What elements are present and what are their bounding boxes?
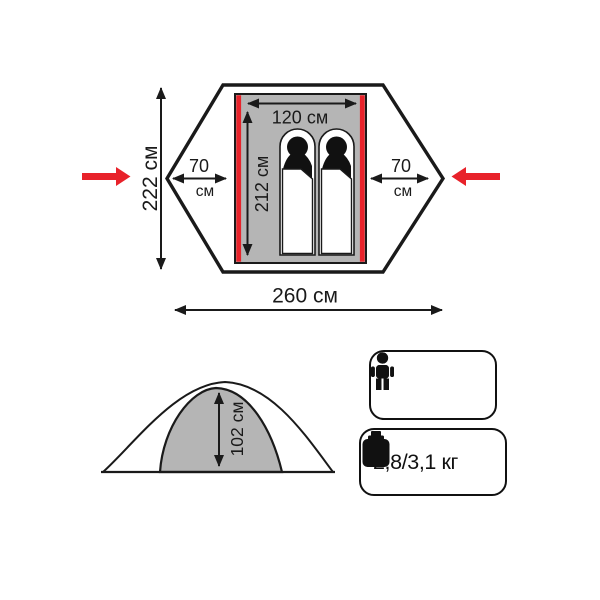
- entrance-arrow-right-icon: [452, 167, 501, 186]
- vestibule-right-value: 70: [391, 156, 411, 176]
- sleeping-bag: [319, 129, 354, 255]
- vestibule-left-value: 70: [189, 156, 209, 176]
- inner-tent-pole-right: [360, 95, 365, 261]
- tent-side-view-diagram: 102 см: [0, 340, 600, 500]
- inner-tent-pole-left: [236, 95, 241, 261]
- weight-badge: 2,8/3,1 кг: [359, 428, 507, 496]
- capacity-badge: [369, 350, 497, 420]
- entrance-arrow-left-icon: [82, 167, 131, 186]
- weight-icon: [361, 430, 391, 468]
- tent-specification-diagram: 222 см 260 см 120 см 212 см 70 см 70 см …: [0, 0, 600, 600]
- inner-width-label: 120 см: [272, 108, 328, 128]
- vestibule-left-unit: см: [196, 183, 214, 200]
- person-icon: [371, 352, 394, 390]
- sleeping-bag: [280, 129, 315, 255]
- tent-top-view-diagram: 222 см 260 см 120 см 212 см 70 см 70 см: [0, 0, 600, 340]
- vestibule-right-unit: см: [394, 183, 412, 200]
- total-width-label: 260 см: [272, 285, 338, 308]
- inner-length-label: 212 см: [252, 156, 272, 212]
- peak-height-label: 102 см: [227, 402, 247, 457]
- total-depth-label: 222 см: [139, 146, 162, 212]
